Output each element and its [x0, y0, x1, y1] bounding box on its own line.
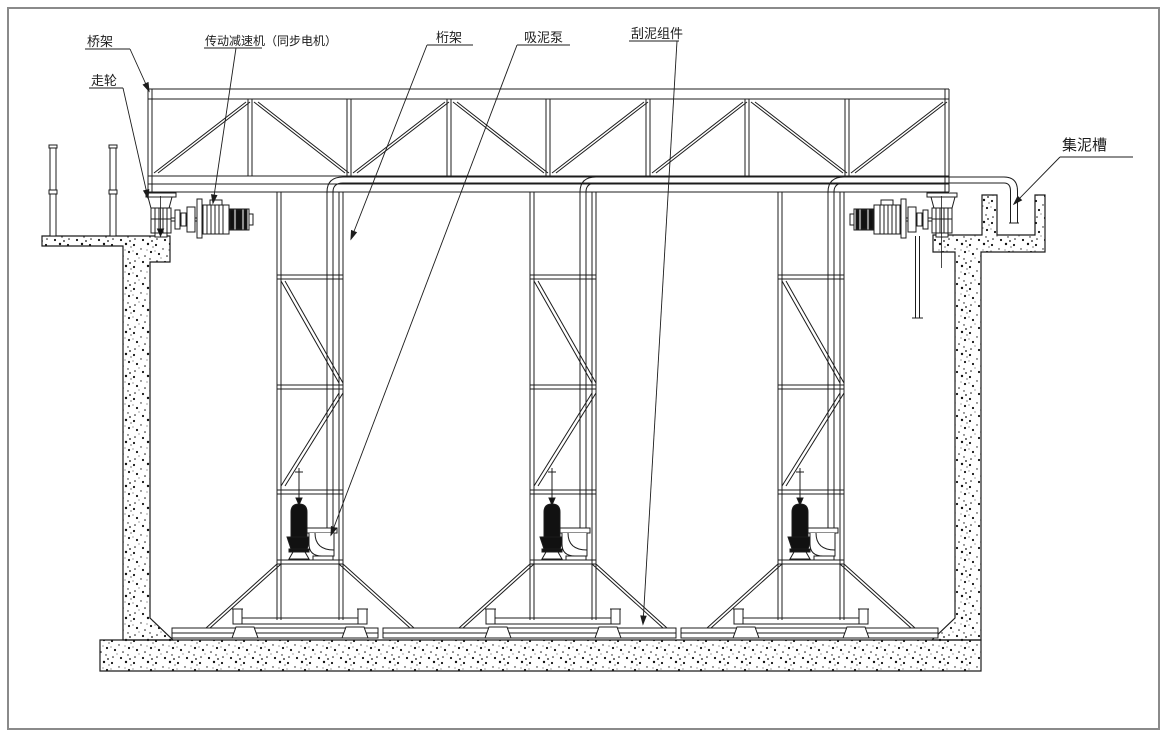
label-travel-wheel: 走轮	[91, 74, 117, 89]
truss-diagonal	[154, 102, 246, 173]
coupling-disc	[923, 210, 928, 229]
column-diagonal	[786, 393, 844, 486]
pump-motor-body	[291, 504, 307, 537]
motor-band	[230, 210, 234, 229]
leader-truss	[351, 45, 427, 239]
label-truss: 桁架	[436, 31, 462, 46]
label-drive-reducer: 传动减速机（同步电机）	[205, 33, 337, 48]
manifold-elbow	[233, 609, 242, 624]
column-diagonal	[285, 281, 343, 383]
right-wall-and-trough-section	[932, 195, 1045, 640]
coupling-disc	[181, 213, 186, 226]
manifold-foot	[232, 627, 258, 638]
truss-diagonal	[258, 102, 349, 173]
reducer-cap	[210, 200, 222, 205]
railing-post-cap	[49, 145, 57, 148]
manifold-elbow	[358, 609, 367, 624]
vertical-truss-columns	[206, 192, 915, 628]
motor-band	[236, 210, 242, 229]
trough-elbow	[1004, 183, 1011, 191]
label-scraper-assembly: 刮泥组件	[631, 27, 683, 42]
manifold-foot	[843, 627, 869, 638]
coupling-disc	[908, 207, 916, 232]
truss-diagonal	[453, 102, 544, 173]
pump-volute	[788, 537, 812, 549]
discharge-elbow-base	[313, 556, 333, 560]
truss-diagonal	[652, 102, 743, 173]
leader-bridge-frame-arrowhead	[143, 83, 149, 91]
coupling-disc	[187, 207, 195, 232]
railing-post-band	[49, 190, 57, 194]
manifold-elbow	[734, 609, 743, 624]
left-wall-section	[42, 236, 173, 640]
column-diagonal	[281, 393, 339, 486]
travel-drive-units	[146, 193, 957, 318]
sludge-suction-scraper-cross-section: 桥架 走轮 传动减速机（同步电机） 桁架 吸泥泵 刮泥组件 集泥槽	[0, 0, 1174, 736]
discharge-elbow-base	[814, 556, 834, 560]
truss-diagonal	[353, 102, 445, 173]
engineering-drawing-sheet: 桥架 走轮 传动减速机（同步电机） 桁架 吸泥泵 刮泥组件 集泥槽	[0, 0, 1174, 736]
coupling-disc	[917, 213, 922, 226]
motor-band	[869, 210, 873, 229]
pump-motor-body	[544, 504, 560, 537]
motor-end-cap	[249, 214, 253, 225]
tank-floor-section	[100, 640, 981, 671]
leader-scraper-assembly-arrowhead	[641, 616, 646, 624]
truss-diagonal	[457, 102, 548, 173]
annotation-labels: 桥架 走轮 传动减速机（同步电机） 桁架 吸泥泵 刮泥组件 集泥槽	[87, 27, 1107, 154]
discharge-elbow-base	[566, 556, 586, 560]
column-diagonal	[782, 393, 840, 486]
wheel-bracket-plate	[146, 193, 176, 197]
reducer-cap	[881, 200, 893, 205]
manifold-foot	[485, 627, 511, 638]
pump-base	[542, 552, 562, 559]
truss-diagonal	[357, 102, 449, 173]
motor-band	[861, 210, 867, 229]
truss-diagonal	[855, 102, 947, 173]
pump-volute	[287, 537, 311, 549]
column-diagonal	[786, 281, 844, 383]
discharge-elbow	[309, 533, 334, 556]
leader-travel-wheel	[123, 88, 148, 198]
tank-concrete-structure	[42, 195, 1045, 671]
wheel-rail-pad	[936, 233, 948, 237]
travel-wheel	[932, 208, 952, 233]
leader-drive-reducer	[213, 48, 236, 203]
discharge-elbow	[562, 533, 587, 556]
wheel-bracket-plate	[927, 193, 957, 197]
column-diagonal	[538, 281, 596, 383]
column-diagonal	[285, 393, 343, 486]
truss-diagonal	[552, 102, 644, 173]
motor-end-cap	[850, 214, 854, 225]
truss-diagonal	[851, 102, 943, 173]
column-diagonal	[534, 281, 592, 383]
column-diagonal	[534, 393, 592, 486]
column-diagonal	[281, 281, 339, 383]
truss-diagonal	[556, 102, 648, 173]
railing-posts	[49, 145, 117, 236]
mounting-plate	[197, 199, 202, 238]
pump-motor-body	[792, 504, 808, 537]
manifold-elbow	[486, 609, 495, 624]
column-diagonal	[782, 281, 840, 383]
railing-post-band	[109, 190, 117, 194]
manifold-foot	[342, 627, 368, 638]
scraper-blades	[172, 628, 938, 638]
discharge-flange	[560, 528, 590, 533]
manifold-foot	[595, 627, 621, 638]
label-suction-pump: 吸泥泵	[524, 31, 563, 46]
truss-diagonal	[755, 102, 847, 173]
manifold-elbow	[611, 609, 620, 624]
truss-diagonal	[751, 102, 843, 173]
discharge-flange	[808, 528, 838, 533]
pump-base	[289, 552, 309, 559]
manifold-foot	[733, 627, 759, 638]
discharge-elbow	[810, 533, 835, 556]
manifold-elbow	[859, 609, 868, 624]
truss-diagonal	[158, 102, 250, 173]
submersible-suction-pumps	[286, 468, 838, 560]
mounting-plate	[901, 199, 906, 238]
pump-base	[790, 552, 810, 559]
leader-truss-arrowhead	[351, 231, 356, 239]
pump-volute	[540, 537, 564, 549]
coupling-disc	[175, 210, 180, 229]
leader-scraper-assembly	[643, 41, 677, 624]
label-sludge-trough: 集泥槽	[1062, 136, 1107, 154]
label-bridge-frame: 桥架	[87, 35, 113, 50]
motor-band	[244, 210, 247, 229]
column-diagonal	[538, 393, 596, 486]
truss-diagonal	[254, 102, 345, 173]
railing-post-cap	[109, 145, 117, 148]
motor-band	[856, 210, 859, 229]
